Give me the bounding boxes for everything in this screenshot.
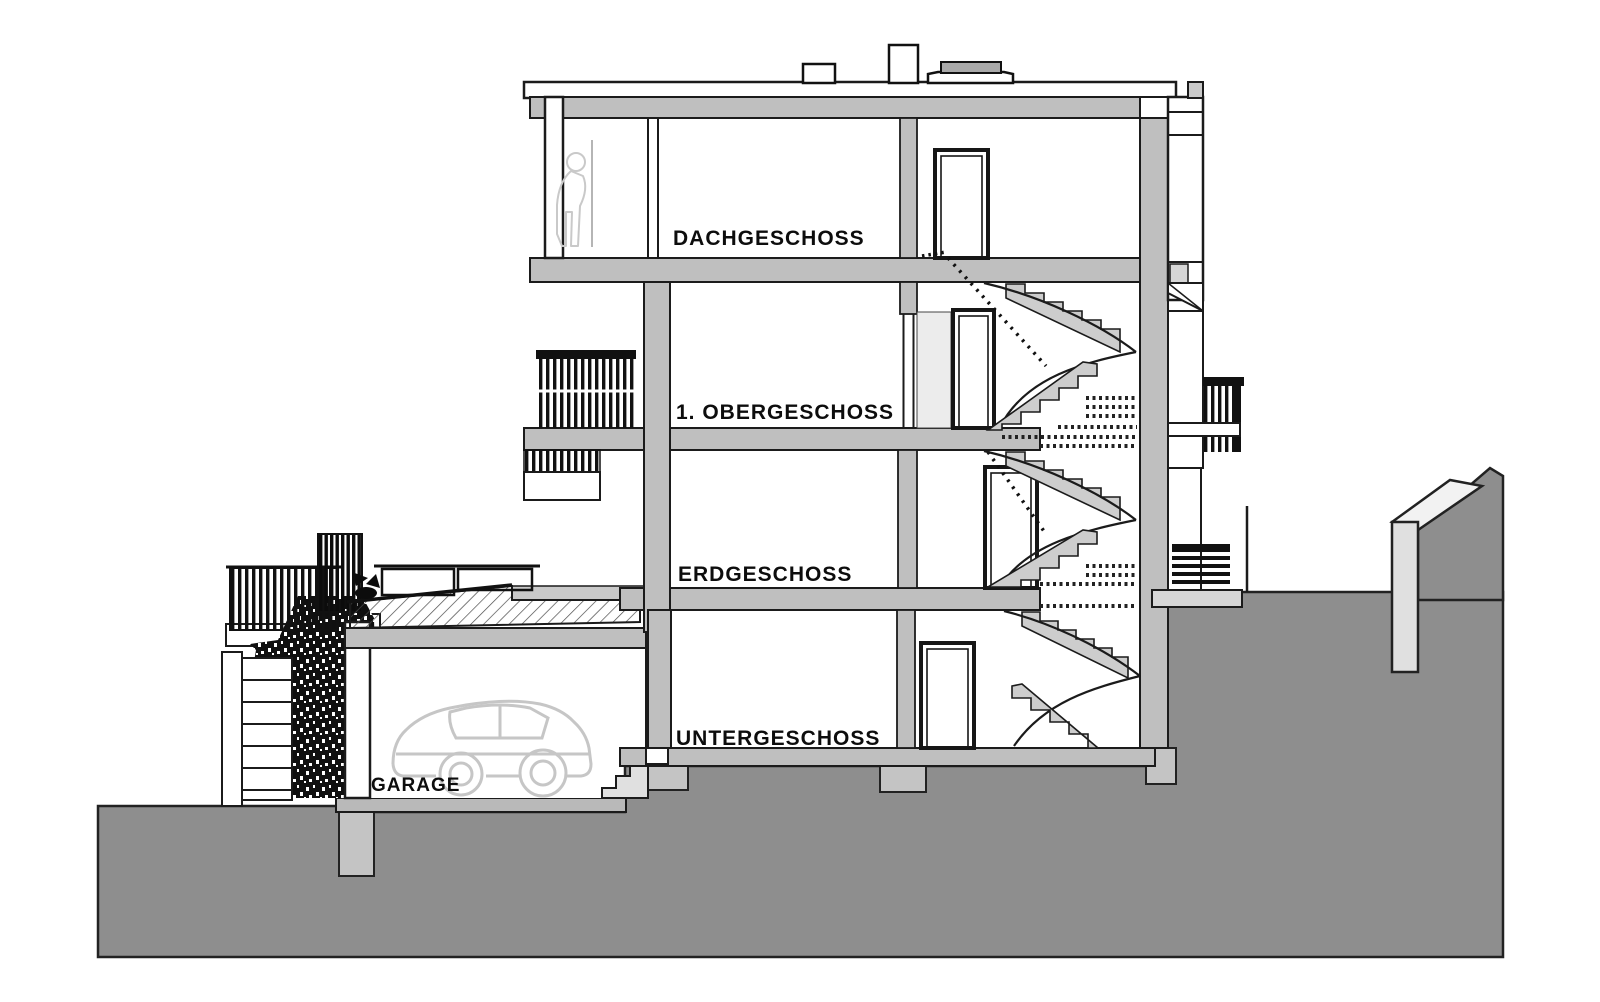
footing-garage: [339, 812, 374, 876]
slab-ug-floor: [620, 748, 1155, 766]
label-dachgeschoss: DACHGESCHOSS: [673, 227, 865, 250]
dg-left-wall: [545, 97, 563, 258]
door-og: [953, 310, 994, 428]
footing-mid: [880, 764, 926, 792]
trellis-ladder: [242, 658, 292, 800]
roof-ornament: [352, 572, 380, 599]
building-section-drawing: GARAGE: [0, 0, 1600, 1002]
mid-wall-og-top: [900, 282, 917, 314]
terrace-railing: [374, 566, 540, 595]
roof-coping: [524, 82, 1176, 98]
footing-stair: [648, 764, 688, 790]
mid-wall-dg: [900, 118, 917, 258]
slab-og-eg: [524, 428, 1040, 450]
floor-labels: DACHGESCHOSS 1. OBERGESCHOSS ERDGESCHOSS…: [673, 227, 894, 750]
label-erdgeschoss: ERDGESCHOSS: [678, 563, 852, 586]
retaining-wall-strip: [222, 652, 242, 806]
slab-dg-og: [530, 258, 1168, 282]
right-wall: [1140, 118, 1168, 748]
ug-left-wall: [648, 610, 671, 748]
left-wall: [644, 282, 670, 632]
site-wall-front-face: [1392, 522, 1418, 672]
garage-label: GARAGE: [371, 775, 460, 796]
mid-wall-eg: [898, 450, 917, 588]
garage-ceiling-slab: [345, 628, 648, 648]
section-canvas: GARAGE: [0, 0, 1600, 1002]
stair-flight-ug: [1004, 611, 1140, 748]
entrance-landing: [1152, 590, 1242, 607]
chimney: [889, 45, 918, 83]
slab-eg-ug: [620, 588, 1040, 610]
right-bay: [1168, 82, 1203, 592]
label-untergeschoss: UNTERGESCHOSS: [676, 727, 880, 750]
og-half-panel: [917, 312, 951, 428]
label-obergeschoss: 1. OBERGESCHOSS: [676, 401, 894, 424]
balcony-og: [536, 350, 636, 428]
balcony-lower-rail: [524, 450, 600, 500]
door-dg: [935, 150, 988, 258]
roof-box: [803, 64, 835, 83]
door-ug: [921, 643, 974, 748]
garage-floor-slab: [336, 798, 626, 812]
garage-block: GARAGE: [345, 566, 648, 798]
skylight-cap: [941, 62, 1001, 73]
roof-slab: [530, 97, 1168, 118]
mid-wall-ug: [897, 610, 915, 748]
